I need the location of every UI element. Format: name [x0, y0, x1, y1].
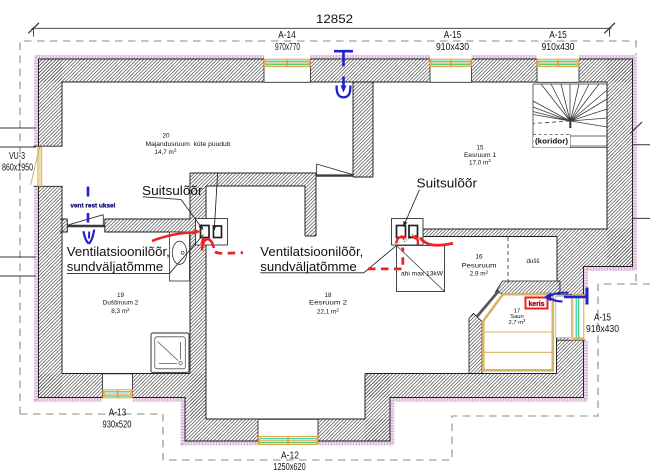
svg-text:19: 19	[117, 292, 125, 299]
svg-text:Ventilatsioonilõõr,: Ventilatsioonilõõr,	[260, 244, 363, 259]
svg-text:A-15: A-15	[549, 30, 567, 41]
svg-text:keris: keris	[529, 301, 545, 308]
svg-text:16: 16	[475, 254, 483, 261]
svg-text:22,1 m2: 22,1 m2	[317, 307, 339, 315]
svg-text:Suitsulõõr: Suitsulõõr	[142, 183, 203, 198]
svg-text:Suitsulõõr: Suitsulõõr	[417, 176, 478, 191]
svg-text:910x430: 910x430	[436, 42, 469, 53]
svg-text:860x1950: 860x1950	[2, 163, 33, 174]
svg-text:910x430: 910x430	[586, 324, 619, 335]
svg-text:930x520: 930x520	[103, 420, 132, 431]
svg-text:20: 20	[162, 133, 170, 140]
svg-text:910x430: 910x430	[542, 42, 575, 53]
svg-text:A-15: A-15	[594, 313, 611, 324]
svg-text:Dušširuum 2: Dušširuum 2	[103, 300, 139, 307]
svg-text:sundväljatõmme: sundväljatõmme	[67, 259, 163, 274]
svg-text:Pesuruum: Pesuruum	[462, 262, 497, 269]
svg-text:sundväljatõmme: sundväljatõmme	[260, 259, 357, 274]
svg-text:17,0 m2: 17,0 m2	[469, 158, 491, 166]
svg-text:Majandusruum küte puudub: Majandusruum küte puudub	[146, 141, 232, 148]
svg-text:VU-3: VU-3	[9, 151, 25, 162]
svg-text:A-13: A-13	[109, 408, 127, 419]
svg-text:ahi max 13kW: ahi max 13kW	[401, 270, 444, 277]
svg-text:18: 18	[324, 292, 332, 299]
svg-text:A-14: A-14	[278, 30, 296, 41]
svg-text:A-12: A-12	[281, 450, 299, 461]
svg-text:12852: 12852	[316, 12, 353, 26]
svg-text:15: 15	[476, 145, 484, 152]
svg-text:A-15: A-15	[444, 30, 462, 41]
svg-text:Eesruum 2: Eesruum 2	[309, 299, 348, 306]
svg-text:(koridor): (koridor)	[535, 139, 568, 146]
svg-text:vent rest uksel: vent rest uksel	[70, 202, 115, 209]
svg-text:1250x620: 1250x620	[273, 462, 306, 473]
svg-text:Ventilatsioonilõõr,: Ventilatsioonilõõr,	[67, 244, 170, 259]
svg-text:970x770: 970x770	[275, 42, 300, 53]
svg-text:14,7 m2: 14,7 m2	[155, 148, 177, 156]
svg-text:Eesruum 1: Eesruum 1	[464, 152, 497, 159]
svg-text:dušš: dušš	[526, 258, 539, 265]
